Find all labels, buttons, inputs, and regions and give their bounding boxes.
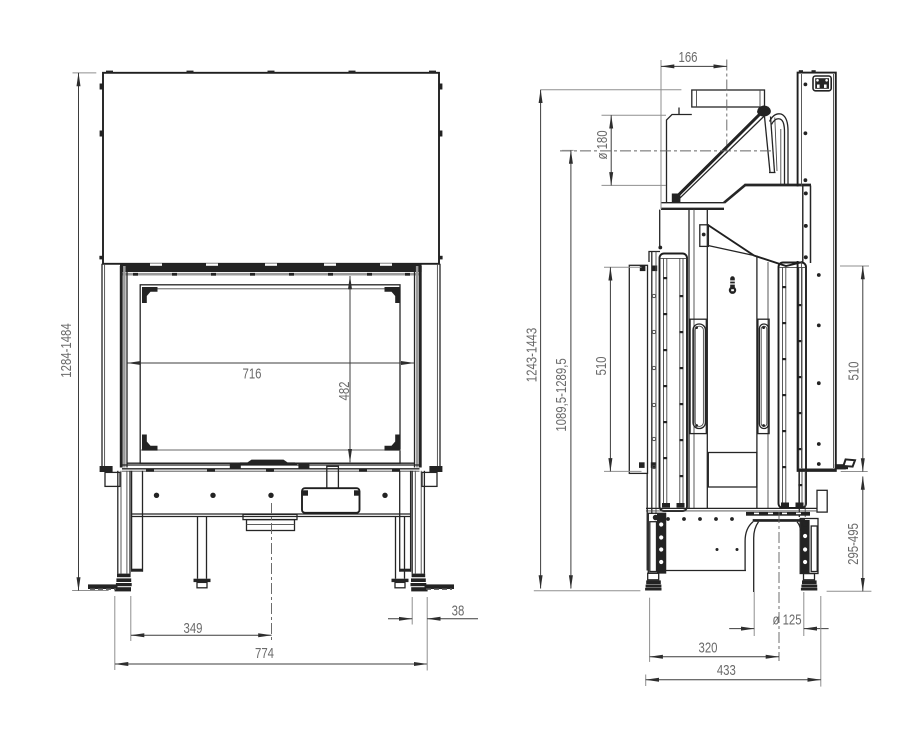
svg-text:ø 125: ø 125 (772, 611, 801, 628)
svg-text:1284-1484: 1284-1484 (57, 323, 74, 377)
svg-text:510: 510 (593, 357, 610, 376)
svg-text:166: 166 (679, 49, 698, 66)
svg-text:320: 320 (699, 639, 718, 656)
svg-text:774: 774 (255, 645, 274, 662)
svg-text:349: 349 (184, 620, 203, 637)
svg-text:482: 482 (336, 382, 353, 401)
svg-text:38: 38 (452, 602, 465, 619)
svg-text:716: 716 (243, 365, 262, 382)
svg-text:1243-1443: 1243-1443 (523, 328, 540, 382)
svg-text:ø 180: ø 180 (594, 130, 611, 159)
svg-text:295-495: 295-495 (845, 523, 862, 565)
svg-text:1089,5-1289,5: 1089,5-1289,5 (553, 358, 570, 431)
svg-text:510: 510 (845, 362, 862, 381)
svg-text:433: 433 (717, 662, 736, 679)
